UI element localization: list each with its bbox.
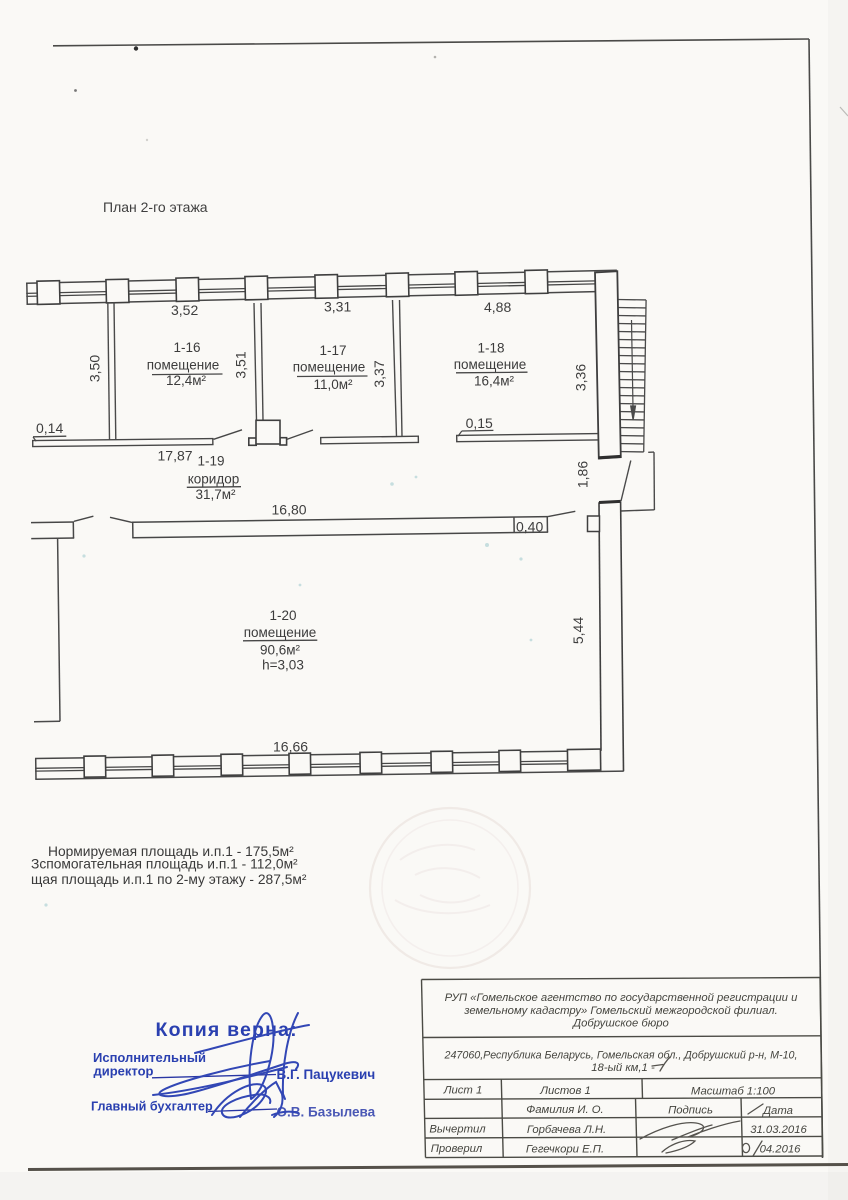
svg-text:0,14: 0,14	[36, 420, 63, 436]
svg-text:Подпись: Подпись	[668, 1105, 713, 1117]
svg-text:Масштаб 1:100: Масштаб 1:100	[691, 1086, 776, 1098]
svg-text:3,36: 3,36	[573, 364, 589, 391]
svg-text:помещение: помещение	[147, 358, 220, 373]
svg-text:17,87: 17,87	[158, 448, 193, 464]
svg-text:11,0м²: 11,0м²	[313, 377, 353, 392]
svg-text:помещение: помещение	[244, 625, 317, 640]
svg-text:12,4м²: 12,4м²	[166, 373, 207, 388]
svg-text:31.03.2016: 31.03.2016	[750, 1124, 807, 1136]
svg-text:1-16: 1-16	[173, 340, 200, 355]
svg-text:В.Г. Пацукевич: В.Г. Пацукевич	[277, 1067, 376, 1082]
svg-text:земельному кадастру» Гомельски: земельному кадастру» Гомельский межгород…	[463, 1005, 778, 1017]
svg-text:директор: директор	[94, 1064, 154, 1079]
svg-text:18-ый км,1 -: 18-ый км,1 -	[591, 1062, 655, 1074]
svg-text:3,37: 3,37	[371, 360, 387, 387]
svg-text:90,6м²: 90,6м²	[260, 643, 301, 658]
svg-text:Горбачева Л.Н.: Горбачева Л.Н.	[527, 1124, 606, 1136]
svg-text:Фамилия И. О.: Фамилия И. О.	[526, 1104, 603, 1116]
svg-text:РУП «Гомельское агентство по г: РУП «Гомельское агентство по государстве…	[445, 992, 798, 1004]
svg-text:Дата: Дата	[761, 1105, 793, 1117]
svg-text:1-20: 1-20	[269, 608, 296, 623]
svg-text:3,50: 3,50	[86, 355, 102, 382]
svg-text:помещение: помещение	[293, 360, 366, 375]
svg-text:Зспомогательная площадь и.п.1: Зспомогательная площадь и.п.1 - 112,0м²	[31, 857, 298, 872]
svg-text:Копия верна:: Копия верна:	[156, 1019, 298, 1041]
svg-text:31,7м²: 31,7м²	[195, 487, 236, 502]
svg-text:04.2016: 04.2016	[760, 1144, 802, 1156]
svg-text:5,44: 5,44	[570, 617, 586, 644]
svg-text:1-17: 1-17	[319, 343, 346, 358]
svg-text:Листов 1: Листов 1	[539, 1085, 591, 1097]
svg-text:3,51: 3,51	[232, 351, 248, 378]
svg-text:3,52: 3,52	[171, 302, 198, 318]
svg-text:0,15: 0,15	[466, 415, 493, 431]
svg-text:4,88: 4,88	[484, 299, 511, 315]
svg-text:Главный бухгалтер: Главный бухгалтер	[91, 1100, 213, 1114]
svg-text:Лист 1: Лист 1	[443, 1085, 483, 1097]
svg-text:247060,Республика Беларусь, Го: 247060,Республика Беларусь, Гомельская о…	[444, 1050, 798, 1062]
svg-text:0,40: 0,40	[516, 519, 543, 535]
svg-text:помещение: помещение	[454, 357, 527, 372]
svg-text:коридор: коридор	[188, 472, 240, 487]
svg-text:Вычертил: Вычертил	[429, 1124, 486, 1136]
svg-text:Проверил: Проверил	[431, 1143, 483, 1155]
svg-text:16,66: 16,66	[273, 739, 308, 755]
svg-text:1,86: 1,86	[575, 461, 591, 488]
svg-text:План 2-го этажа: План 2-го этажа	[103, 199, 208, 215]
svg-text:16,4м²: 16,4м²	[474, 374, 515, 389]
svg-text:Гегечкори Е.П.: Гегечкори Е.П.	[526, 1143, 604, 1155]
svg-text:Добрушское бюро: Добрушское бюро	[571, 1018, 669, 1030]
svg-text:1-19: 1-19	[197, 454, 224, 469]
svg-text:1-18: 1-18	[477, 341, 504, 356]
svg-text:16,80: 16,80	[272, 502, 307, 518]
svg-text:h=3,03: h=3,03	[262, 658, 304, 673]
svg-text:3,31: 3,31	[324, 299, 351, 315]
svg-text:щая площадь и.п.1 по 2-му этаж: щая площадь и.п.1 по 2-му этажу - 287,5м…	[31, 872, 307, 887]
